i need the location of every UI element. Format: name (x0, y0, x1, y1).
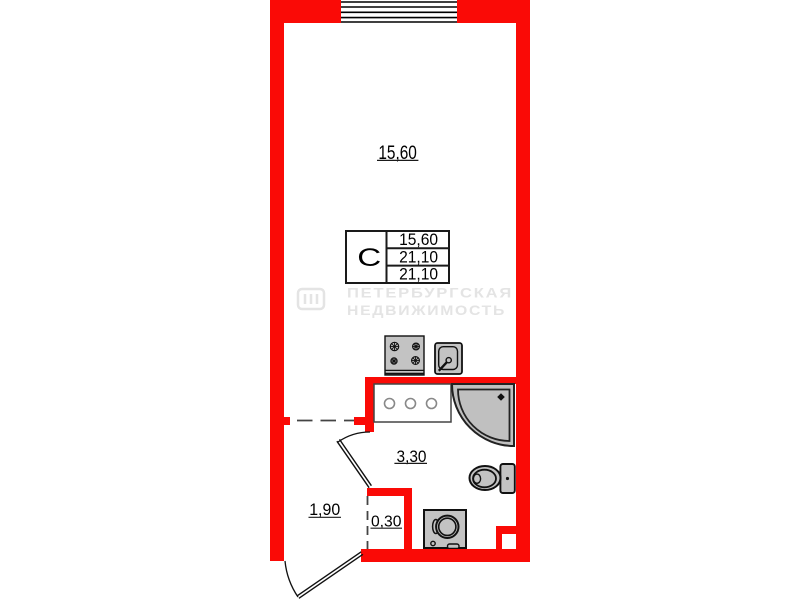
svg-text:1,90: 1,90 (309, 500, 340, 519)
svg-text:НЕДВИЖИМОСТЬ: НЕДВИЖИМОСТЬ (347, 302, 506, 318)
svg-text:15,60: 15,60 (399, 231, 438, 249)
svg-text:ПЕТЕРБУРГСКАЯ: ПЕТЕРБУРГСКАЯ (347, 285, 513, 301)
svg-text:15,60: 15,60 (378, 143, 417, 164)
svg-text:С: С (357, 244, 381, 272)
svg-text:21,10: 21,10 (399, 266, 438, 284)
svg-text:21,10: 21,10 (399, 248, 438, 266)
